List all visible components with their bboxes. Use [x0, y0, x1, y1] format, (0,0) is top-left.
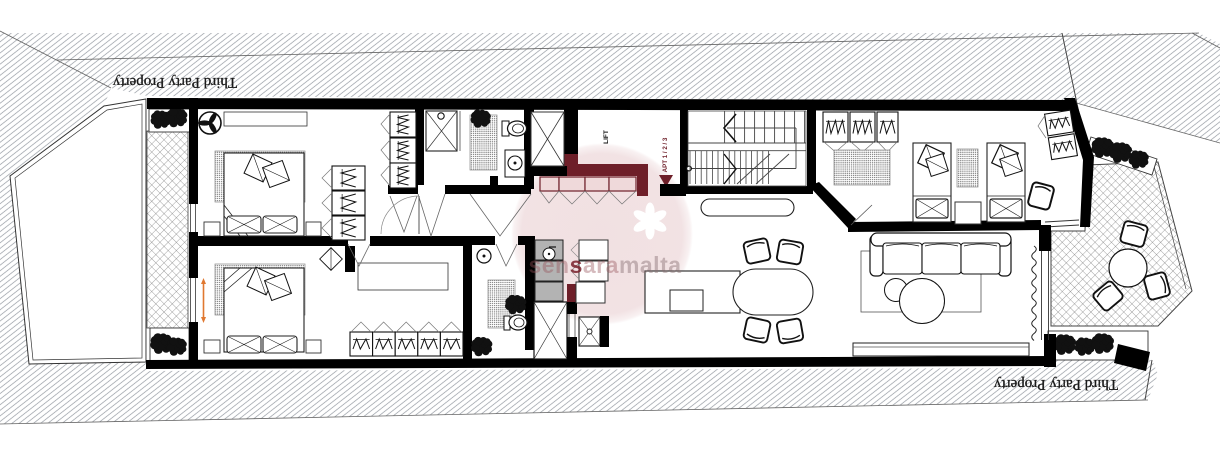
svg-text:Third Party Property: Third Party Property [993, 376, 1118, 392]
svg-text:LIFT: LIFT [603, 130, 610, 144]
svg-text:sensaramalta: sensaramalta [528, 252, 681, 278]
svg-text:Third Party Property: Third Party Property [112, 74, 237, 90]
svg-text:APT 1 / 2 / 3: APT 1 / 2 / 3 [662, 137, 669, 172]
